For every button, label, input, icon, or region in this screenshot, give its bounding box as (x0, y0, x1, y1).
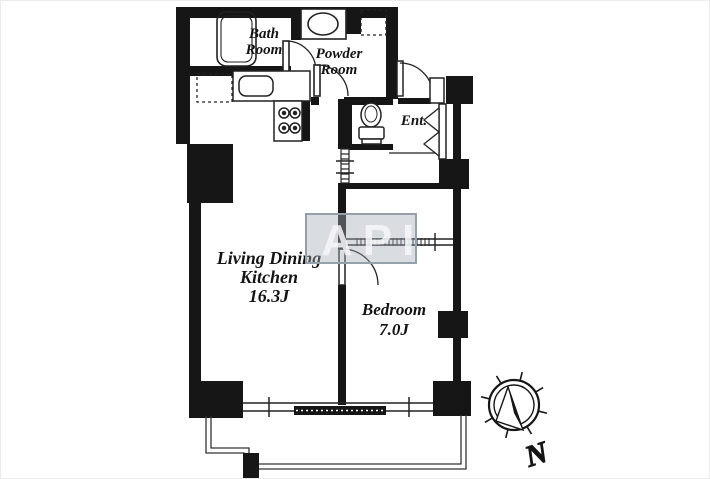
floor-plan-canvas: Bath Room Powder Room Ent. Living Dining… (1, 1, 710, 479)
ldk-size-label: 16.3J (249, 286, 291, 306)
pillar-right-1 (439, 159, 469, 189)
bedroom-size-label: 7.0J (379, 320, 409, 339)
toilet-bowl-inner (365, 106, 377, 122)
kitchen (197, 71, 310, 141)
bath-door-panel (283, 41, 289, 73)
pillar-bottom-left (189, 381, 243, 418)
ldk-label-2: Kitchen (239, 267, 298, 287)
bath-label-1: Bath (248, 26, 279, 42)
wall-powder-bottom-stub (311, 97, 319, 105)
balcony-partition (243, 453, 259, 478)
toilet-room (359, 103, 384, 144)
stove (274, 101, 302, 141)
watermark: API (306, 214, 424, 265)
powder-label-2: Room (320, 62, 358, 78)
entry-door-jamb (430, 78, 444, 103)
wall-top (176, 7, 398, 18)
entrance (389, 61, 446, 159)
wall-ldk-corridor (338, 99, 346, 149)
powder-label-1: Powder (316, 46, 363, 62)
bedroom-label: Bedroom (361, 300, 426, 319)
wall-stove-side (302, 101, 310, 141)
watermark-text: API (321, 216, 424, 265)
wall-toilet-bottom (352, 144, 393, 150)
pillar-right-2 (438, 311, 468, 338)
shoe-closet-side (439, 104, 446, 159)
compass-north-label: N (520, 435, 553, 474)
toilet-base (362, 139, 381, 144)
bath-label-2: Room (245, 42, 283, 58)
wall-bedroom-west-lower (338, 285, 346, 405)
entry-door-arc (400, 63, 433, 96)
wall-entry-top-stub (398, 98, 431, 104)
wall-right-b (453, 189, 461, 311)
pillar-entry (446, 76, 473, 104)
wall-left-upper (176, 7, 190, 144)
fridge-space (197, 74, 232, 102)
entrance-label: Ent. (400, 113, 427, 129)
wall-right-c (453, 338, 461, 383)
compass: N (473, 364, 555, 474)
entry-door-panel (397, 61, 403, 96)
powder-door-panel (314, 65, 320, 96)
wall-powder-right (386, 7, 398, 99)
pillar-left (187, 144, 233, 203)
toilet-tank (359, 127, 384, 139)
pillar-bottom-right (433, 381, 471, 416)
wall-corridor-south (338, 183, 441, 189)
wall-left-lower (189, 201, 201, 383)
wall-bath-powder-divider (291, 7, 301, 40)
wall-vanity-washer-block (346, 7, 361, 34)
wall-right-a (453, 104, 461, 159)
balcony (206, 415, 466, 478)
corridor-sliding-door (336, 149, 354, 183)
wall-toilet-left (346, 99, 352, 150)
floor-plan: Bath Room Powder Room Ent. Living Dining… (0, 0, 710, 479)
